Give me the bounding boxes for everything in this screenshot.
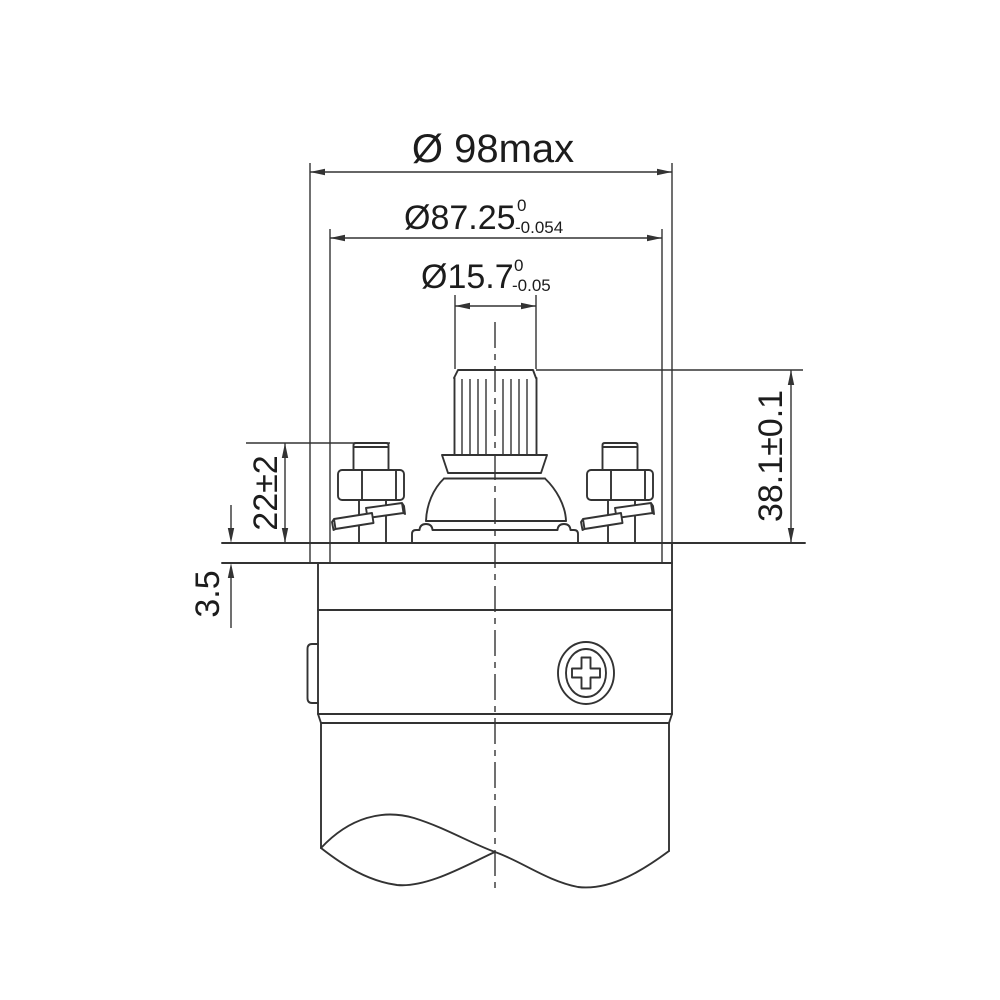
body-side-tab <box>308 644 319 703</box>
right-terminal <box>581 443 654 543</box>
dome-left-curve <box>426 479 444 522</box>
tolerance-upper: 0 <box>517 196 526 215</box>
dimension-label: Ø15.7 <box>421 258 514 296</box>
break-wave-line <box>321 848 495 885</box>
arrowhead-left-icon <box>330 235 345 241</box>
arrowhead-up-icon <box>788 370 794 385</box>
phillips-cross-icon <box>572 658 600 689</box>
terminal-nut <box>587 470 653 500</box>
arrowhead-down-icon <box>228 528 234 543</box>
arrowhead-right-icon <box>647 235 662 241</box>
solder-lug-lower <box>332 513 374 530</box>
arrowhead-left-icon <box>310 169 325 175</box>
solder-lug-lower <box>581 513 623 530</box>
tolerance-lower: -0.054 <box>515 218 563 237</box>
phillips-screw <box>558 642 614 704</box>
drawing-canvas: Ø 98max Ø87.25 0 -0.054 Ø15.7 0 -0.05 38… <box>0 0 1000 1000</box>
dimension-label: 22±2 <box>247 455 285 530</box>
arrowhead-left-icon <box>455 303 470 309</box>
dimension-shaft-height: 38.1±0.1 <box>536 370 803 543</box>
dimension-label: Ø87.25 <box>404 199 516 237</box>
dimension-plate-thickness: 3.5 <box>189 505 234 628</box>
tolerance-lower: -0.05 <box>512 276 551 295</box>
tolerance-upper: 0 <box>514 256 523 275</box>
dimension-shaft-diameter: Ø15.7 0 -0.05 <box>421 256 551 369</box>
left-terminal <box>332 443 405 543</box>
body-housing <box>308 543 673 723</box>
terminal-nut <box>338 470 404 500</box>
arrowhead-up-icon <box>228 563 234 578</box>
dome-right-curve <box>545 479 566 522</box>
dimension-label: 3.5 <box>189 570 227 617</box>
dimension-label: 38.1±0.1 <box>752 390 790 522</box>
technical-drawing: Ø 98max Ø87.25 0 -0.054 Ø15.7 0 -0.05 38… <box>0 0 1000 1000</box>
arrowhead-down-icon <box>788 528 794 543</box>
dimension-label: Ø 98max <box>412 127 574 171</box>
arrowhead-right-icon <box>521 303 536 309</box>
arrowhead-right-icon <box>657 169 672 175</box>
